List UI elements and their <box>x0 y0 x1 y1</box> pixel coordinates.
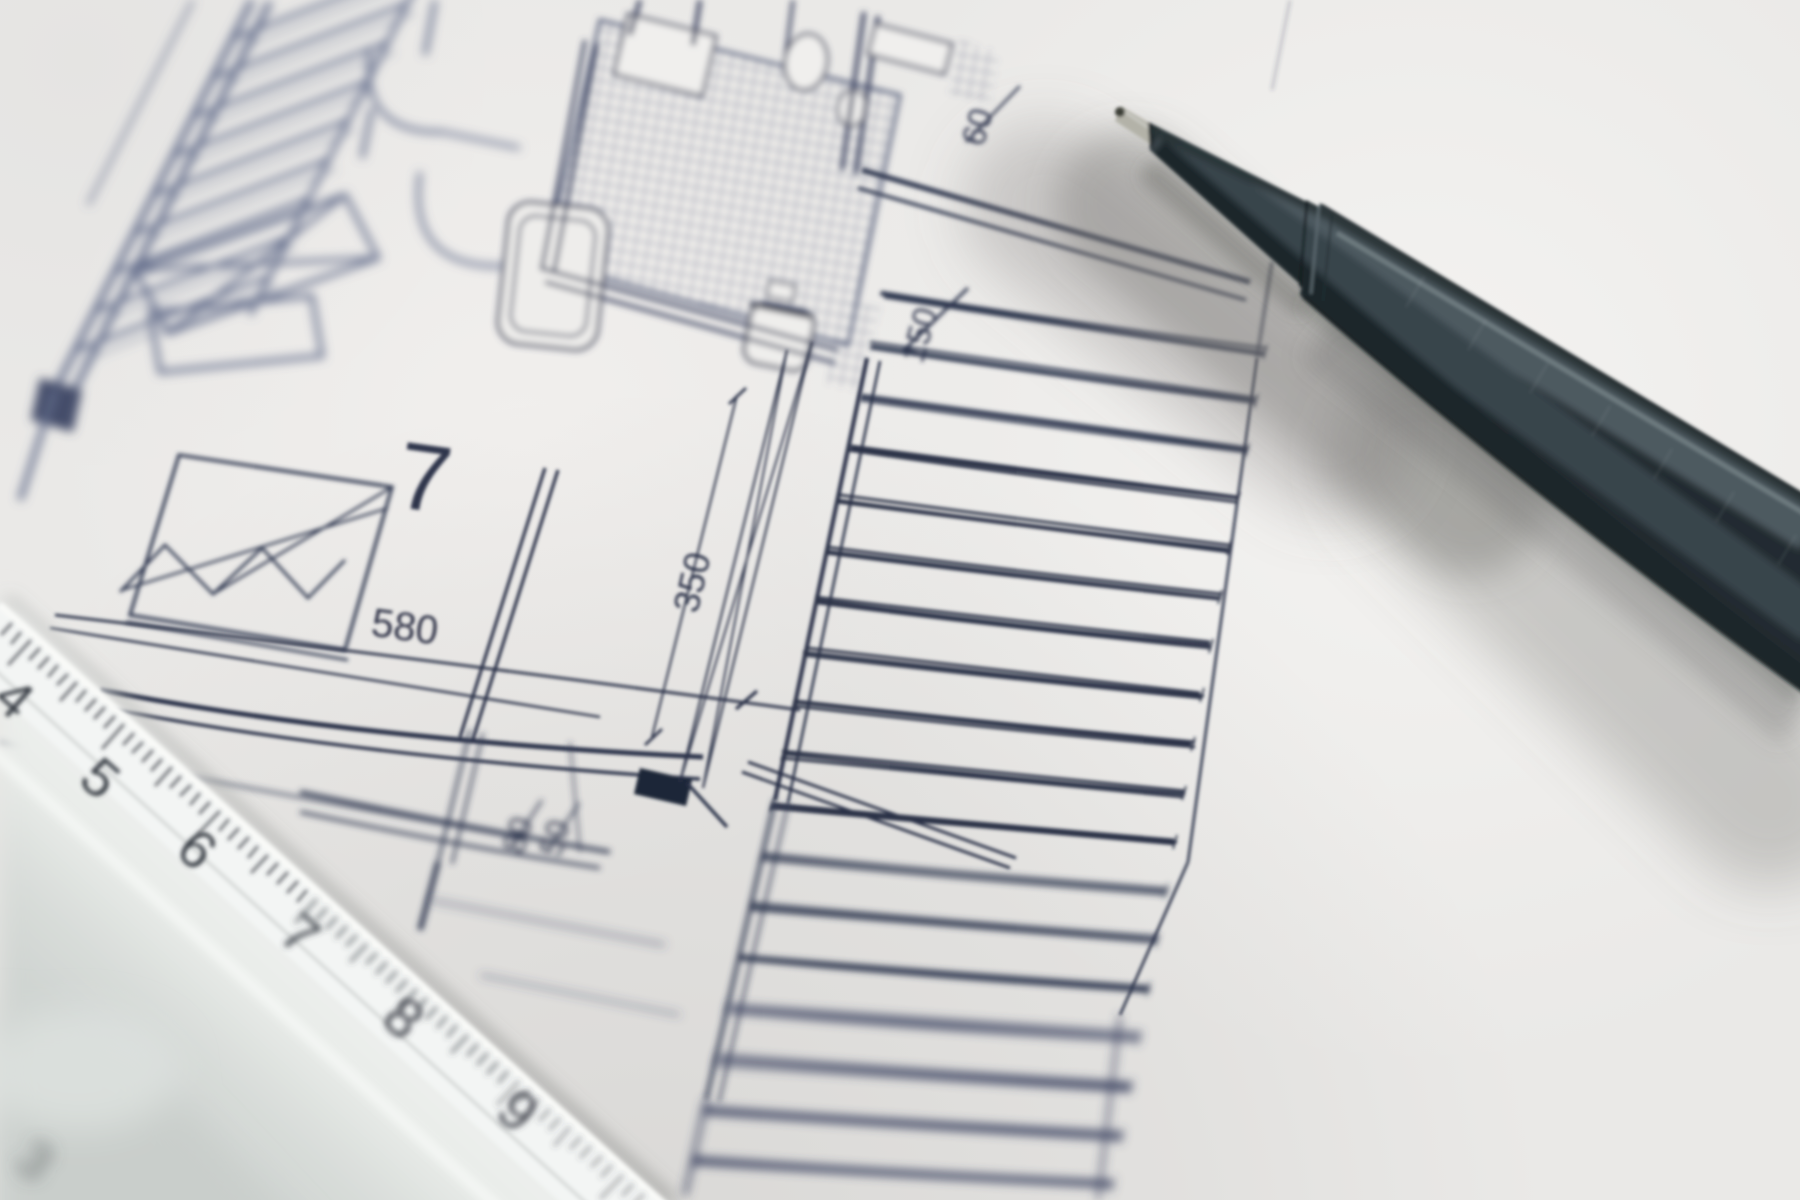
svg-text:580: 580 <box>369 601 441 654</box>
